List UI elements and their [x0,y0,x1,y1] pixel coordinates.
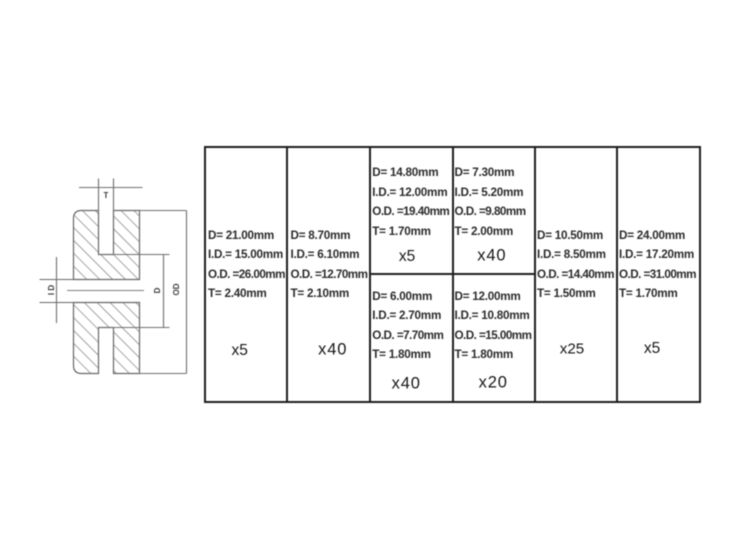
svg-text:D: D [153,287,162,293]
svg-text:I D: I D [47,285,56,295]
svg-text:OD: OD [172,283,181,295]
svg-text:T: T [104,191,109,200]
